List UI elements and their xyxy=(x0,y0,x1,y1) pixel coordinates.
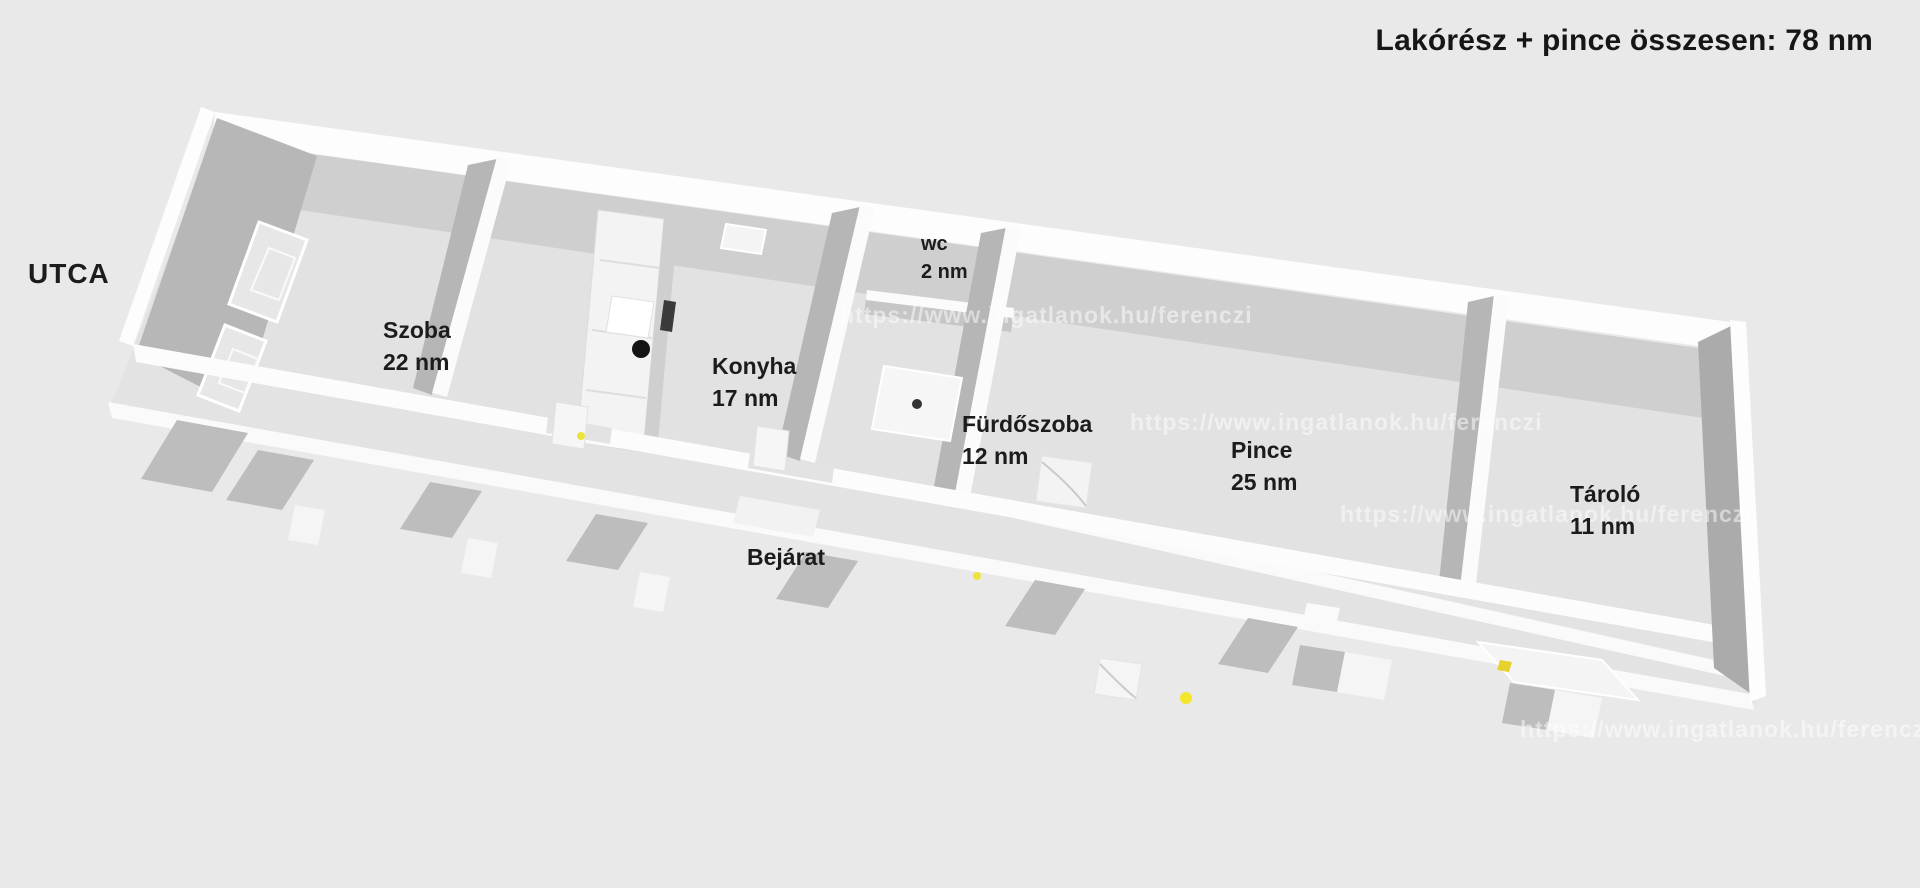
porch-opening-shadow xyxy=(141,420,248,492)
room-area: 11 nm xyxy=(1570,510,1640,542)
konyha-back-window xyxy=(721,224,766,254)
watermark-text: https://www.ingatlanok.hu/ferenczi xyxy=(840,302,1253,328)
room-area: 12 nm xyxy=(962,440,1092,472)
room-area: 22 nm xyxy=(383,346,451,378)
room-name: Konyha xyxy=(712,353,796,379)
room-name: Pince xyxy=(1231,437,1292,463)
szoba-door-leaf xyxy=(552,402,588,449)
watermark-text: https://www.ingatlanok.hu/ferenczi xyxy=(1520,716,1920,742)
porch-pillar xyxy=(461,538,498,578)
room-label-szoba: Szoba 22 nm xyxy=(383,314,451,378)
room-label-konyha: Konyha 17 nm xyxy=(712,350,796,414)
room-area: 25 nm xyxy=(1231,466,1297,498)
porch-opening-shadow xyxy=(400,482,482,538)
marker-dot-bath-front xyxy=(973,572,981,580)
street-label: UTCA xyxy=(28,258,110,290)
watermark-text: https://www.ingatlanok.hu/ferenczi xyxy=(1130,409,1543,435)
porch-opening-shadow xyxy=(226,450,314,510)
entrance-door-leaf xyxy=(753,426,789,471)
room-area: 2 nm xyxy=(921,258,968,286)
porch-pillar xyxy=(288,505,325,545)
walkway-pillar xyxy=(1337,652,1392,700)
marker-dot-szoba-door xyxy=(577,432,585,440)
room-area: 17 nm xyxy=(712,382,796,414)
total-area-title: Lakórész + pince összesen: 78 nm xyxy=(1376,24,1873,58)
kitchen-stove-dot xyxy=(632,340,650,358)
room-label-tarolo: Tároló 11 nm xyxy=(1570,478,1640,542)
room-name: wc xyxy=(921,233,948,255)
floorplan-3d-drawing: https://www.ingatlanok.hu/ferenczi https… xyxy=(0,0,1920,888)
marker-dot-walkway xyxy=(1180,692,1192,704)
room-label-furdoszoba: Fürdőszoba 12 nm xyxy=(962,408,1092,472)
room-name: Tároló xyxy=(1570,481,1640,507)
watermark-text: https://www.ingatlanok.hu/ferenczi xyxy=(1340,501,1753,527)
room-name: Szoba xyxy=(383,317,451,343)
kitchen-sink xyxy=(606,296,654,338)
entrance-label: Bejárat xyxy=(747,544,825,571)
room-name: Fürdőszoba xyxy=(962,411,1092,437)
walkway-opening-shadow xyxy=(1005,580,1085,635)
porch-pillar xyxy=(633,572,670,612)
porch-opening-shadow xyxy=(566,514,648,570)
room-label-wc: wc 2 nm xyxy=(921,230,968,286)
walkway-pillar-shadow xyxy=(1292,645,1345,692)
walkway-opening-shadow xyxy=(1218,618,1298,673)
shower-drain-dot xyxy=(912,399,922,409)
room-label-pince: Pince 25 nm xyxy=(1231,434,1297,498)
